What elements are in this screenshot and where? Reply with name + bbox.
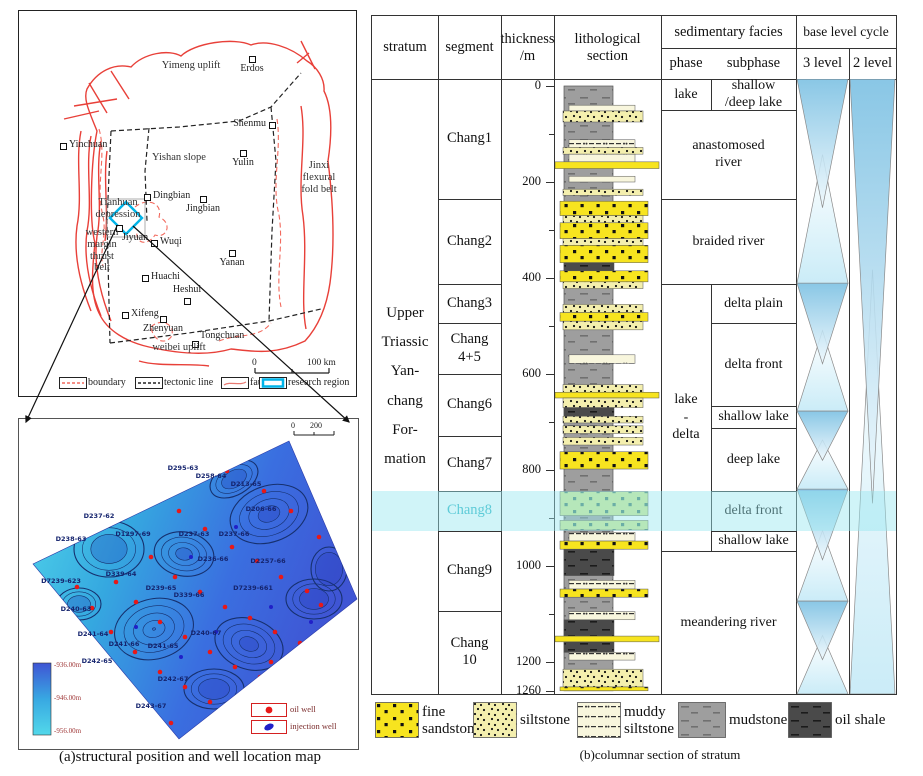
depth-label-200: 200 bbox=[501, 174, 541, 189]
depth-minor-tick bbox=[549, 518, 554, 519]
lith-layer-os bbox=[564, 263, 614, 271]
lith-layer-st bbox=[563, 216, 643, 223]
lith-layer-st bbox=[563, 147, 643, 154]
colorbar-label-1: -946.00m bbox=[54, 694, 81, 702]
legendb-label-fs: finesandstone bbox=[422, 704, 481, 737]
well-label-D339-64: D339-64 bbox=[106, 570, 137, 578]
lith-layer-g8 bbox=[560, 520, 648, 530]
lith-layer-fs bbox=[560, 452, 648, 469]
subphase-6-shallowlake: shallow lake bbox=[711, 531, 796, 551]
depth-minor-tick bbox=[549, 230, 554, 231]
depth-tick bbox=[546, 470, 554, 471]
subphase-3-shallowlake: shallow lake bbox=[711, 406, 796, 428]
subphase-divider bbox=[711, 551, 796, 552]
subphase-4-deeplake: deep lake bbox=[711, 428, 796, 491]
lith-layer-st bbox=[563, 416, 643, 423]
well-label-D339-66: D339-66 bbox=[174, 591, 205, 599]
contour-legend-box-0 bbox=[251, 703, 287, 717]
lith-layer-fs bbox=[560, 541, 648, 549]
depth-tick bbox=[546, 691, 554, 692]
subphase-0-shallowdeeplake: shallow/deep lake bbox=[711, 79, 796, 110]
header-phase: phase bbox=[661, 48, 711, 79]
lith-layer-os bbox=[564, 620, 614, 636]
phase-sub-divider bbox=[711, 284, 712, 552]
well-label-D240-63: D240-63 bbox=[61, 605, 92, 613]
well-label-D206-66: D206-66 bbox=[246, 505, 277, 513]
well-label-D237-63: D237-63 bbox=[179, 530, 210, 538]
header-2-level: 2 level bbox=[849, 48, 896, 79]
phase-meanderingriver: meandering river bbox=[661, 551, 796, 694]
legendb-swatch-fs bbox=[375, 702, 419, 738]
caption-a: (a)structural position and well location… bbox=[30, 749, 350, 766]
lith-layer-fs bbox=[560, 589, 648, 597]
depth-tick bbox=[546, 374, 554, 375]
segment-chang3: Chang3 bbox=[438, 284, 501, 323]
depth-tick bbox=[546, 278, 554, 279]
lith-layer-os bbox=[564, 408, 614, 417]
well-label-D7239-661: D7239-661 bbox=[233, 584, 273, 592]
grid-line bbox=[661, 48, 896, 49]
three-level-cycle-column bbox=[796, 79, 849, 694]
header-base-level-cycle: base level cycle bbox=[796, 16, 896, 48]
lith-layer-fs bbox=[560, 687, 648, 691]
depth-minor-tick bbox=[549, 614, 554, 615]
legend-swatch-kdash bbox=[135, 377, 163, 389]
well-label-D241-64: D241-64 bbox=[78, 630, 109, 638]
phase-braidedriver: braided river bbox=[661, 199, 796, 284]
legend-label-crect: research region bbox=[288, 377, 349, 388]
subphase-divider bbox=[711, 110, 796, 111]
lith-layer-os bbox=[564, 642, 614, 653]
well-label-D236-66: D236-66 bbox=[198, 555, 229, 563]
well-location-map-panel: 0 200 D295-63D258-64D213-65D206-66D237-6… bbox=[18, 418, 359, 750]
thickness-column: 0200400600800100012001260 bbox=[501, 79, 554, 694]
lith-layer-st bbox=[563, 669, 643, 687]
lith-layer-st bbox=[563, 437, 643, 445]
contour-legend-label-1: injection well bbox=[290, 721, 337, 731]
lith-layer-g8 bbox=[560, 492, 648, 516]
lith-layer-fs bbox=[560, 223, 648, 239]
well-label-D237-66: D237-66 bbox=[219, 530, 250, 538]
depth-label-800: 800 bbox=[501, 462, 541, 477]
cycle-down-triangle bbox=[797, 411, 848, 460]
lith-layer-st bbox=[563, 239, 643, 246]
facies-cells: lakeanastomosedriverbraided riverlake-de… bbox=[661, 79, 796, 694]
lith-layer-ms bbox=[569, 105, 635, 111]
header-lithology: lithologicalsection bbox=[554, 16, 661, 79]
depth-label-1260: 1260 bbox=[501, 683, 541, 698]
well-label-D2257-66: D2257-66 bbox=[250, 557, 285, 565]
lith-layer-ms bbox=[569, 154, 635, 162]
structural-map-panel: YinchuanErdosShenmuYulinDingbianJingbian… bbox=[18, 10, 357, 397]
phase-anastomosedriver: anastomosedriver bbox=[661, 110, 796, 199]
legend-label-kdash: tectonic line bbox=[164, 377, 213, 388]
lith-layer-os bbox=[564, 549, 614, 575]
lith-layer-ss bbox=[555, 392, 659, 398]
depth-label-0: 0 bbox=[501, 78, 541, 93]
subphase-divider bbox=[711, 284, 796, 285]
cycle-down-triangle bbox=[850, 79, 895, 503]
lith-layer-fs bbox=[560, 245, 648, 262]
depth-label-1200: 1200 bbox=[501, 654, 541, 669]
subphase-divider bbox=[711, 428, 796, 429]
cycle-down-triangle bbox=[797, 601, 848, 660]
depth-minor-tick bbox=[549, 422, 554, 423]
depth-tick bbox=[546, 662, 554, 663]
legendb-label-ms: muddysiltstone bbox=[624, 704, 674, 737]
well-label-D258-64: D258-64 bbox=[196, 472, 227, 480]
well-label-D243-67: D243-67 bbox=[136, 702, 167, 710]
lith-layer-ms bbox=[569, 612, 635, 620]
lith-layer-st bbox=[563, 111, 643, 122]
cycle-down-triangle bbox=[797, 283, 848, 364]
header-sedimentary-facies: sedimentary facies bbox=[661, 16, 796, 48]
lith-layer-fs bbox=[560, 201, 648, 215]
subphase-2-deltafront: delta front bbox=[711, 323, 796, 406]
lith-layer-st bbox=[563, 304, 643, 312]
well-label-D7239-623: D7239-623 bbox=[41, 577, 81, 585]
subphase-divider bbox=[711, 406, 796, 407]
well-label-D242-65: D242-65 bbox=[82, 657, 113, 665]
phase-sub-divider bbox=[711, 79, 712, 110]
lith-layer-st bbox=[563, 321, 643, 330]
stratigraphic-table: stratum segment thickness/m lithological… bbox=[371, 15, 897, 695]
lith-layer-ss bbox=[555, 636, 659, 642]
contour-legend-box-1 bbox=[251, 720, 287, 734]
legendb-swatch-ms bbox=[577, 702, 621, 738]
well-label-D238-63: D238-63 bbox=[56, 535, 87, 543]
legendb-label-st: siltstone bbox=[520, 712, 570, 729]
lith-layer-fs bbox=[560, 313, 648, 322]
lith-layer-st bbox=[563, 189, 643, 195]
contour-legend-label-0: oil well bbox=[290, 704, 316, 714]
phase-lakedelta: lake-delta bbox=[661, 284, 711, 552]
depth-label-400: 400 bbox=[501, 270, 541, 285]
figure-page: YinchuanErdosShenmuYulinDingbianJingbian… bbox=[0, 0, 923, 776]
legendb-label-os: oil shale bbox=[835, 712, 885, 729]
header-subphase: subphase bbox=[711, 48, 796, 79]
subphase-5-deltafront: delta front bbox=[711, 491, 796, 531]
lithology-column bbox=[555, 79, 661, 694]
well-label-D240-67: D240-67 bbox=[191, 629, 222, 637]
legend-swatch-rline bbox=[221, 377, 249, 389]
lith-layer-st bbox=[563, 398, 643, 408]
well-label-D295-63: D295-63 bbox=[168, 464, 199, 472]
lith-layer-ms bbox=[569, 580, 635, 589]
segment-chang10: Chang10 bbox=[438, 611, 501, 694]
depth-label-600: 600 bbox=[501, 366, 541, 381]
subphase-1-deltaplain: delta plain bbox=[711, 284, 796, 323]
subphase-divider bbox=[711, 491, 796, 492]
depth-tick bbox=[546, 182, 554, 183]
well-label-D237-62: D237-62 bbox=[84, 512, 115, 520]
well-label-D242-67: D242-67 bbox=[158, 675, 189, 683]
segment-chang9: Chang9 bbox=[438, 531, 501, 611]
legendb-swatch-md bbox=[678, 702, 726, 738]
legend-swatch-rdash bbox=[59, 377, 87, 389]
header-3-level: 3 level bbox=[796, 48, 849, 79]
cycle-down-triangle bbox=[797, 489, 848, 560]
segment-chang4+5: Chang4+5 bbox=[438, 323, 501, 374]
subphase-divider bbox=[711, 323, 796, 324]
legend-swatch-crect bbox=[259, 377, 287, 389]
depth-tick bbox=[546, 86, 554, 87]
subphase-divider bbox=[711, 531, 796, 532]
lith-layer-st bbox=[563, 426, 643, 434]
depth-minor-tick bbox=[549, 134, 554, 135]
lith-layer-fs bbox=[560, 271, 648, 282]
phase-lake: lake bbox=[661, 79, 711, 110]
well-label-D241-65: D241-65 bbox=[148, 642, 179, 650]
cycle-down-triangle bbox=[797, 79, 848, 208]
well-label-D1297-69: D1297-69 bbox=[115, 530, 150, 538]
depth-minor-tick bbox=[549, 326, 554, 327]
legendb-label-md: mudstone bbox=[729, 712, 787, 729]
legendb-swatch-st bbox=[473, 702, 517, 738]
lith-layer-ss bbox=[555, 162, 659, 169]
lith-layer-ms bbox=[569, 176, 635, 182]
contour-labels: D295-63D258-64D213-65D206-66D237-62D1297… bbox=[19, 419, 358, 749]
lith-layer-ms bbox=[569, 652, 635, 660]
lith-layer-st bbox=[563, 385, 643, 393]
colorbar-label-2: -956.00m bbox=[54, 727, 81, 735]
map-legend: boundarytectonic linefaultresearch regio… bbox=[19, 11, 356, 396]
header-segment: segment bbox=[438, 16, 501, 79]
depth-tick bbox=[546, 566, 554, 567]
well-label-D239-65: D239-65 bbox=[146, 584, 177, 592]
header-stratum: stratum bbox=[372, 16, 438, 79]
header-thickness: thickness/m bbox=[501, 16, 554, 79]
lith-layer-ms bbox=[569, 532, 635, 541]
lith-layer-st bbox=[563, 282, 643, 289]
legend-label-rdash: boundary bbox=[88, 377, 126, 388]
well-label-D241-66: D241-66 bbox=[109, 640, 140, 648]
well-label-D213-65: D213-65 bbox=[231, 480, 262, 488]
segment-chang1: Chang1 bbox=[438, 79, 501, 199]
segment-chang7: Chang7 bbox=[438, 436, 501, 491]
depth-label-1000: 1000 bbox=[501, 558, 541, 573]
two-level-cycle-column bbox=[849, 79, 896, 694]
facies-divider bbox=[661, 694, 796, 695]
caption-b: (b)columnar section of stratum bbox=[400, 747, 920, 763]
lith-layer-ms bbox=[569, 355, 635, 364]
segment-chang2: Chang2 bbox=[438, 199, 501, 284]
segment-chang8: Chang8 bbox=[438, 491, 501, 531]
segment-chang6: Chang6 bbox=[438, 374, 501, 436]
legendb-swatch-os bbox=[788, 702, 832, 738]
lith-layer-ms bbox=[569, 140, 635, 148]
colorbar-label-0: -936.00m bbox=[54, 661, 81, 669]
